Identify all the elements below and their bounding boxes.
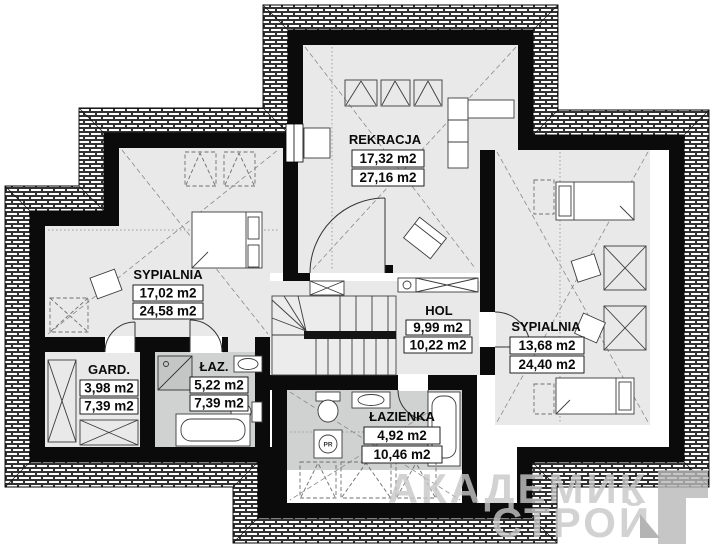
washbasin-icon (352, 392, 390, 408)
tv-bench-icon (304, 128, 330, 158)
svg-text:REKRACJA: REKRACJA (349, 132, 422, 147)
stairs-handrail (304, 331, 396, 339)
svg-text:HOL: HOL (425, 303, 453, 318)
washbasin-icon (234, 356, 262, 372)
floor-plan-page: PR REKRACJA 17,32 m2 27,16 m2 SYPIALNIA … (0, 0, 715, 548)
svg-text:24,58 m2: 24,58 m2 (139, 304, 196, 319)
toilet-icon (316, 392, 340, 422)
svg-text:GARD.: GARD. (88, 362, 130, 377)
svg-text:SYPIALNIA: SYPIALNIA (133, 267, 203, 282)
svg-text:SYPIALNIA: SYPIALNIA (511, 319, 581, 334)
svg-text:5,22 m2: 5,22 m2 (194, 378, 244, 393)
svg-text:7,39 m2: 7,39 m2 (194, 396, 244, 411)
svg-text:ŁAZIENKA: ŁAZIENKA (369, 409, 435, 424)
svg-text:17,32 m2: 17,32 m2 (359, 151, 416, 166)
svg-text:PR: PR (323, 442, 332, 449)
svg-text:27,16 m2: 27,16 m2 (359, 170, 416, 185)
svg-text:4,92 m2: 4,92 m2 (377, 428, 427, 443)
window-icon (286, 124, 303, 162)
floor-plan-svg: PR REKRACJA 17,32 m2 27,16 m2 SYPIALNIA … (0, 0, 715, 548)
wardrobe-nook-icon (310, 281, 344, 295)
watermark-text-line2: СТРОЙ (492, 498, 652, 546)
cabinet-icon (398, 278, 478, 292)
shower-icon (158, 356, 192, 390)
bathtub-icon (176, 414, 250, 446)
svg-text:3,98 m2: 3,98 m2 (84, 381, 134, 396)
room-label-sypialnia-left: SYPIALNIA 17,02 m2 24,58 m2 (133, 267, 203, 319)
svg-text:9,99 m2: 9,99 m2 (413, 320, 463, 335)
room-label-sypialnia-right: SYPIALNIA 13,68 m2 24,40 m2 (510, 319, 584, 373)
svg-text:ŁAZ.: ŁAZ. (200, 359, 229, 374)
room-label-lazienka: ŁAZIENKA 4,92 m2 10,46 m2 (362, 409, 442, 463)
svg-text:10,22 m2: 10,22 m2 (409, 338, 466, 353)
svg-text:13,68 m2: 13,68 m2 (518, 338, 575, 353)
single-bed-bottom-icon (556, 378, 634, 414)
stairs (272, 296, 396, 375)
double-bed-icon (192, 212, 262, 268)
svg-text:17,02 m2: 17,02 m2 (139, 286, 196, 301)
svg-text:7,39 m2: 7,39 m2 (84, 399, 134, 414)
svg-text:24,40 m2: 24,40 m2 (518, 357, 575, 372)
single-bed-top-icon (556, 182, 634, 220)
svg-text:10,46 m2: 10,46 m2 (373, 447, 430, 462)
room-label-rekracja: REKRACJA 17,32 m2 27,16 m2 (349, 132, 424, 186)
washing-machine-icon: PR (314, 430, 342, 458)
room-label-gard: GARD. 3,98 m2 7,39 m2 (80, 362, 138, 414)
